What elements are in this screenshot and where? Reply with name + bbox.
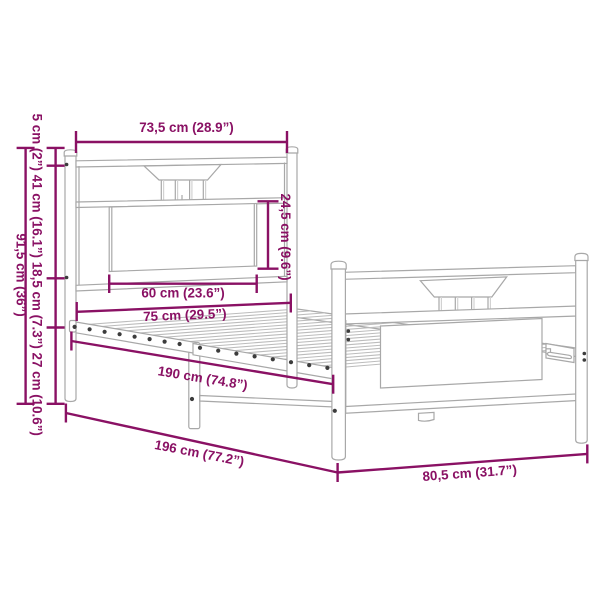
svg-text:73,5 cm (28.9”): 73,5 cm (28.9”) — [139, 120, 234, 135]
svg-text:24,5 cm (9.6”): 24,5 cm (9.6”) — [278, 193, 293, 280]
svg-text:91,5 cm (36”): 91,5 cm (36”) — [14, 233, 29, 316]
svg-text:60 cm (23.6”): 60 cm (23.6”) — [141, 285, 224, 300]
svg-text:5 cm (2”) 41 cm (16.1”) 18,5 c: 5 cm (2”) 41 cm (16.1”) 18,5 cm (7.3”) 2… — [30, 114, 45, 436]
svg-text:75 cm (29.5”): 75 cm (29.5”) — [143, 306, 227, 324]
